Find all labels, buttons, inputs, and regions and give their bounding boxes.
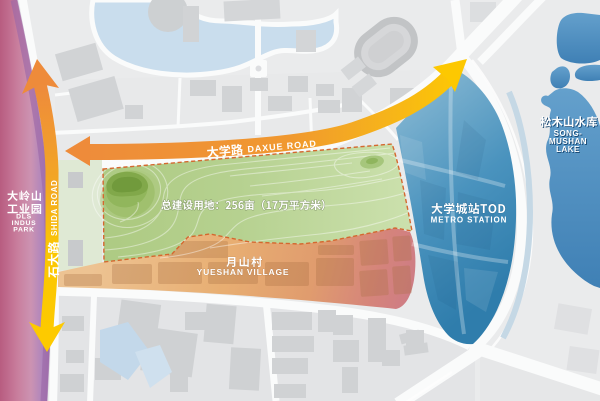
svg-text:YUESHAN VILLAGE: YUESHAN VILLAGE <box>197 267 290 277</box>
svg-text:METRO STATION: METRO STATION <box>431 216 508 225</box>
svg-text:SHIDA ROAD: SHIDA ROAD <box>50 180 59 236</box>
svg-text:PARK: PARK <box>13 227 35 234</box>
svg-text:LAKE: LAKE <box>556 145 580 154</box>
